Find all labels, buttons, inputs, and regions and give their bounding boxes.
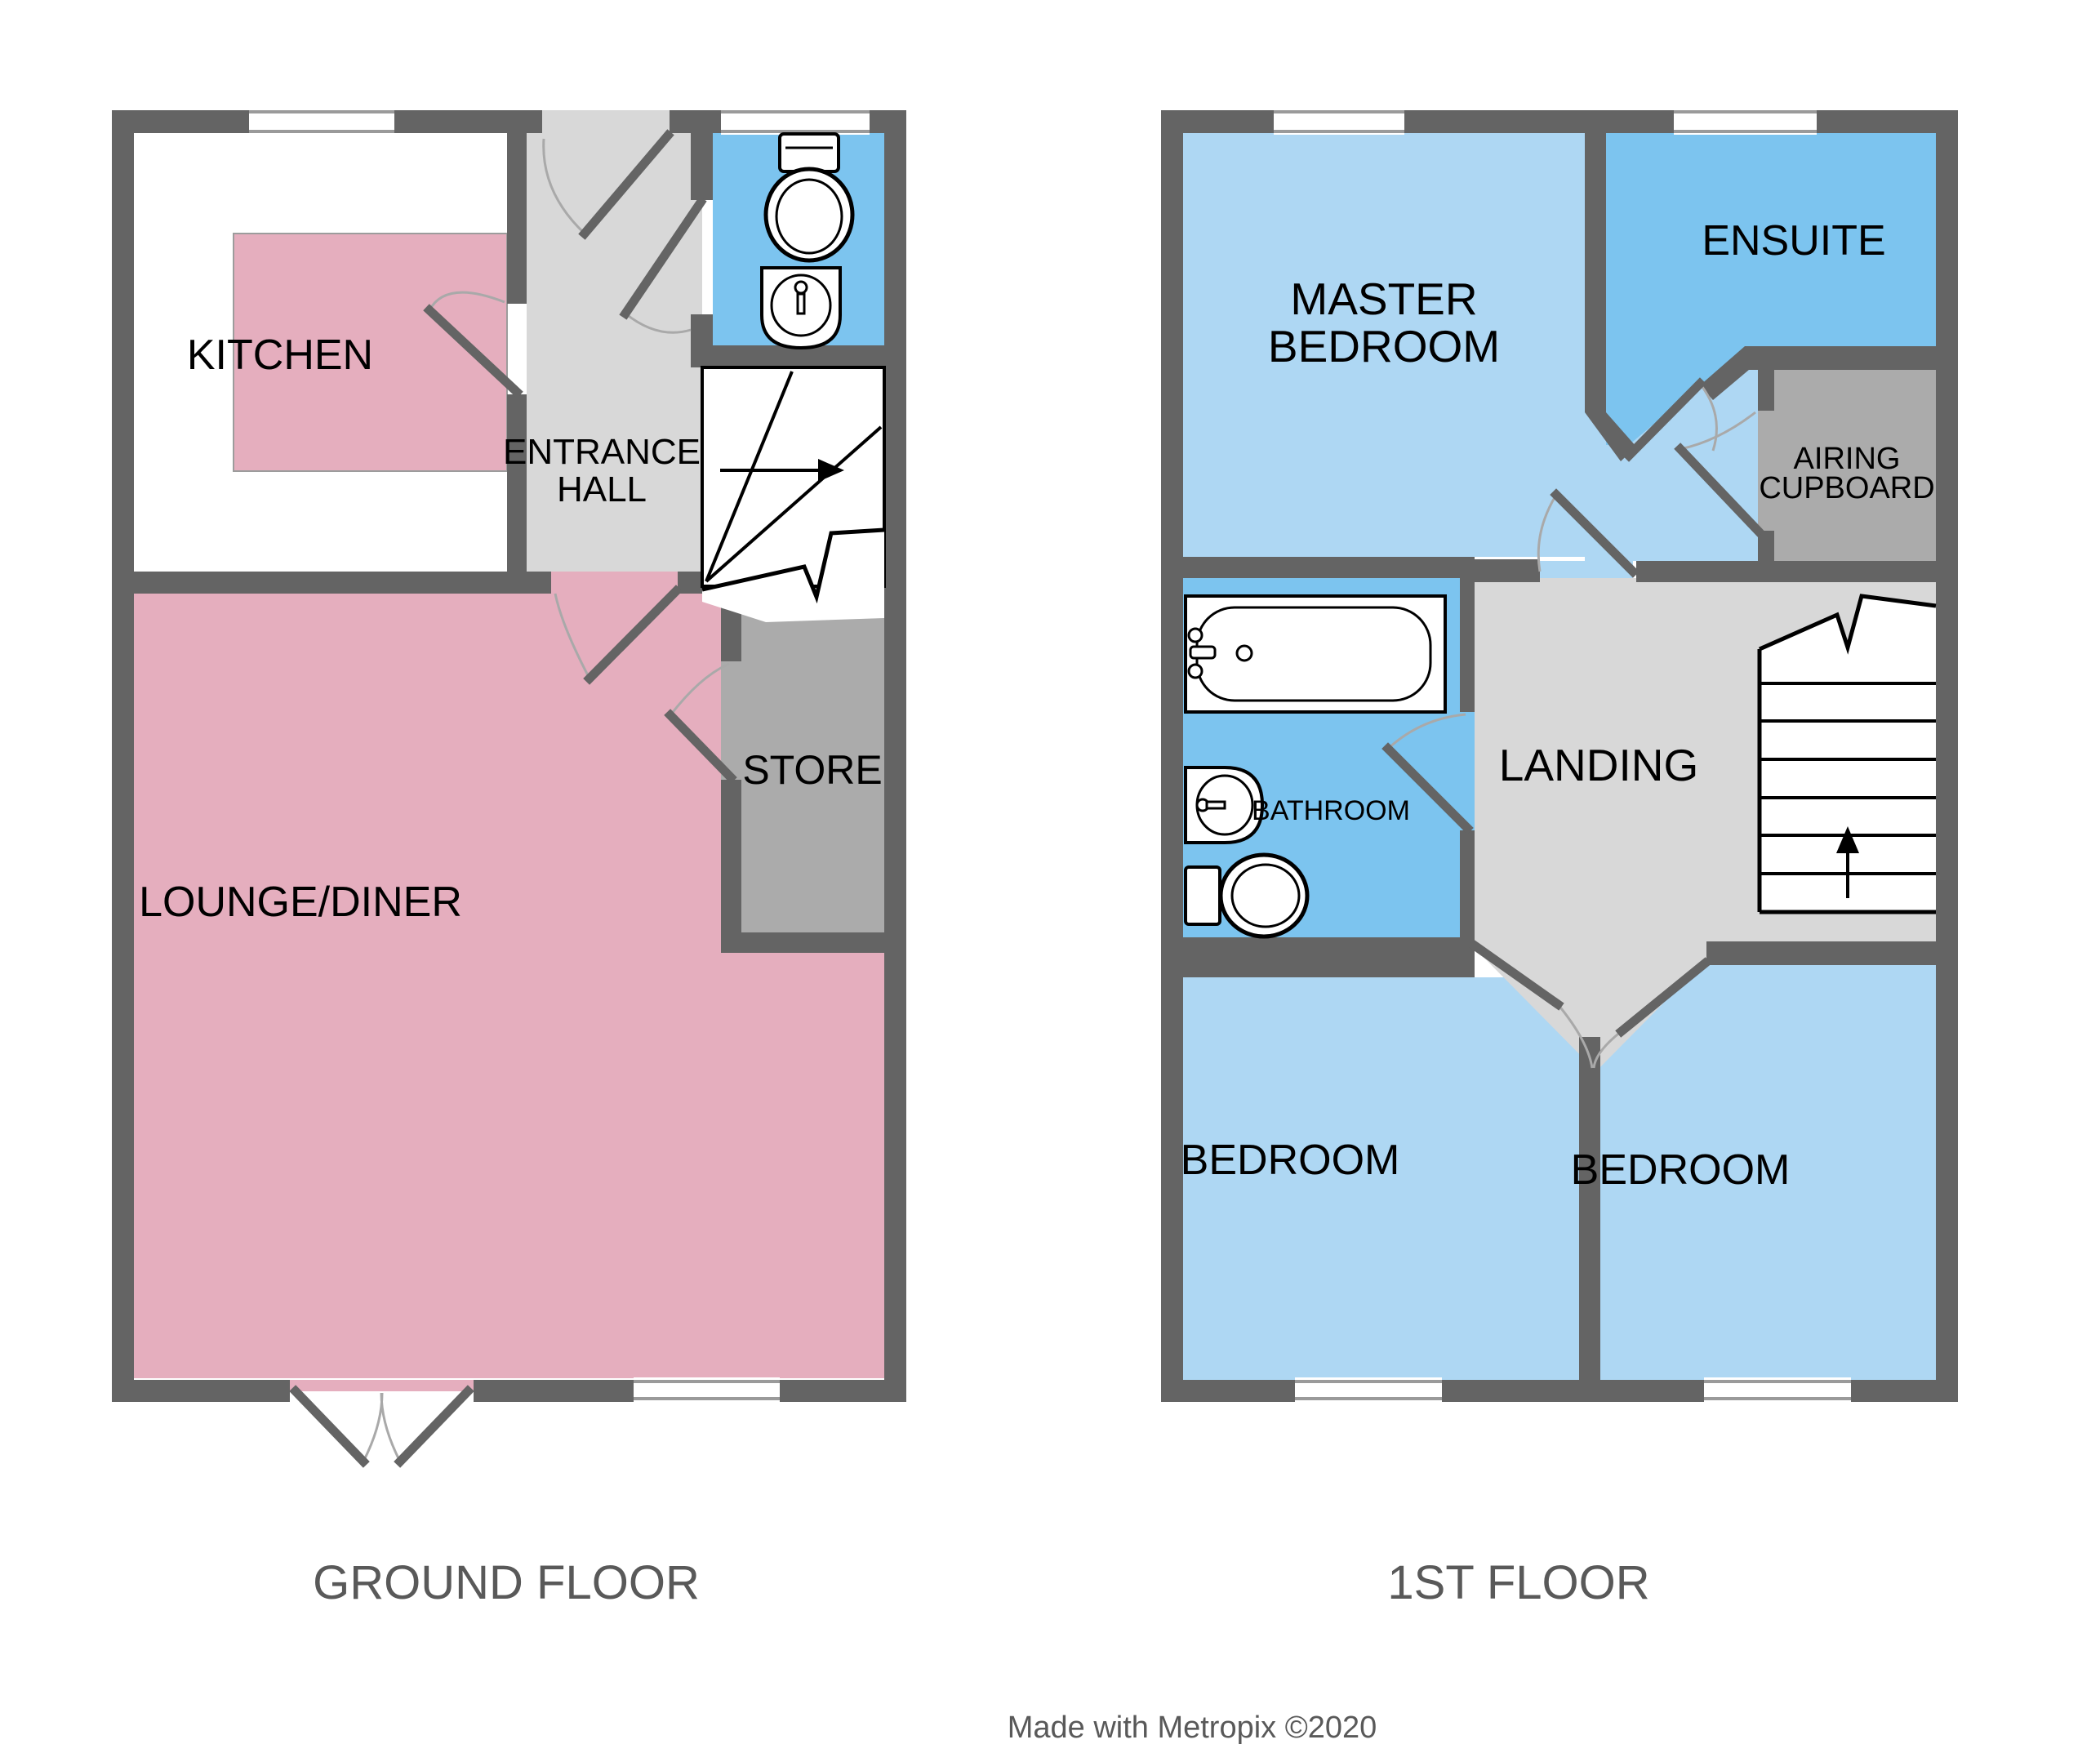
- ff-wall-bathroom-right-upper: [1460, 578, 1475, 712]
- ff-wall-bathroom-right-lower: [1460, 830, 1475, 937]
- ff-wall-master-right: [1585, 133, 1606, 412]
- kitchen-window: [249, 108, 394, 135]
- ff-wall-bathroom-top: [1161, 557, 1475, 578]
- bathtub-icon: [1186, 596, 1445, 712]
- kitchen-label: KITCHEN: [187, 331, 373, 379]
- master-bedroom-window: [1274, 108, 1404, 135]
- wc-sink-icon: [762, 268, 840, 348]
- store-label: STORE: [742, 747, 882, 793]
- bathroom-label: BATHROOM: [1252, 795, 1410, 826]
- ff-wall-bathroom-bottom: [1161, 937, 1475, 977]
- master-bedroom-label-line1: MASTER: [1290, 274, 1477, 324]
- entrance-hall-label-line2: HALL: [557, 469, 647, 509]
- wc-toilet-icon: [766, 134, 852, 260]
- gf-wall-wc-bottom: [691, 345, 884, 367]
- bathroom-sink-icon: [1186, 767, 1262, 843]
- ff-wall-cupboard-left-upper: [1758, 370, 1774, 411]
- bedroom-left-label: BEDROOM: [1181, 1137, 1400, 1184]
- lounge-window: [634, 1377, 780, 1404]
- bedroom-right-label: BEDROOM: [1571, 1146, 1791, 1194]
- ensuite-label: ENSUITE: [1702, 217, 1885, 265]
- ff-staircase: [1760, 596, 1936, 912]
- ensuite-window: [1674, 108, 1817, 135]
- gf-wall-kitchen-lounge: [134, 572, 551, 594]
- gf-wall-store-bottom: [721, 932, 884, 953]
- ff-wall-lobby-bottom: [1636, 561, 1936, 582]
- ff-wall-cupboard-left-lower: [1758, 531, 1774, 561]
- ground-floor-plan: KITCHEN ENTRANCE HALL LOUNGE/DINER STORE…: [112, 108, 906, 1609]
- ground-floor-title: GROUND FLOOR: [313, 1556, 700, 1609]
- gf-wall-right: [884, 110, 906, 1402]
- lounge-diner-label: LOUNGE/DINER: [139, 879, 462, 926]
- bedroom-right-window: [1704, 1377, 1851, 1404]
- french-doors: [290, 1380, 474, 1462]
- metropix-credit: Made with Metropix ©2020: [1008, 1711, 1377, 1745]
- entrance-hall-label-line1: ENTRANCE: [503, 432, 701, 472]
- bathroom-toilet-icon: [1186, 855, 1307, 937]
- airing-cupboard-label-line2: CUPBOARD: [1759, 471, 1934, 505]
- master-bedroom-label-line2: BEDROOM: [1268, 321, 1500, 372]
- gf-wall-store-left-lower: [721, 780, 741, 932]
- gf-wall-kitchen-hall-lower: [507, 394, 527, 572]
- bedroom-left-window: [1295, 1377, 1442, 1404]
- landing-label: LANDING: [1499, 740, 1699, 790]
- ff-wall-left: [1161, 110, 1183, 1402]
- gf-wall-kitchen-hall-upper: [507, 133, 527, 304]
- wc-window: [721, 108, 870, 135]
- gf-staircase: [702, 367, 884, 622]
- ff-wall-ensuite-bottom: [1745, 346, 1936, 370]
- gf-wall-left: [112, 110, 134, 1402]
- first-floor-plan: MASTER BEDROOM ENSUITE AIRING CUPBOARD B…: [1161, 108, 1958, 1609]
- hall-lounge-doorway-floor: [551, 572, 678, 594]
- gf-wall-bottom: [112, 1380, 906, 1402]
- floorplan-page: KITCHEN ENTRANCE HALL LOUNGE/DINER STORE…: [0, 0, 2100, 1749]
- ff-wall-bedroom-divider: [1579, 1037, 1600, 1380]
- gf-wall-wc-left-lower: [691, 314, 713, 345]
- ff-wall-right: [1936, 110, 1958, 1402]
- gf-wall-wc-left-upper: [691, 133, 713, 200]
- floorplan-drawing: KITCHEN ENTRANCE HALL LOUNGE/DINER STORE…: [0, 0, 2100, 1749]
- ff-wall-landing-top-left: [1475, 559, 1540, 582]
- ff-wall-landing-bottom: [1706, 941, 1936, 965]
- first-floor-title: 1ST FLOOR: [1387, 1556, 1649, 1609]
